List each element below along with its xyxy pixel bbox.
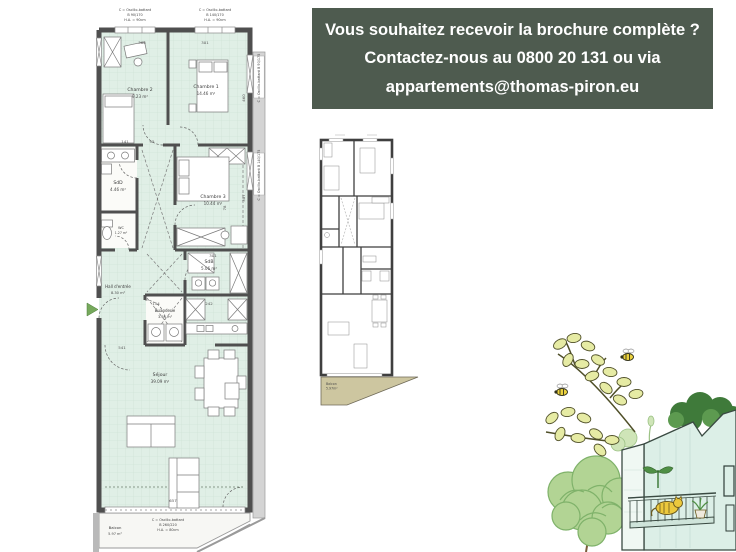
- svg-text:B 90/170: B 90/170: [127, 13, 142, 17]
- main-floor-plan: Chambre 2 9.23 m² Chambre 1 14.46 m² SdD…: [85, 0, 280, 552]
- room-area-sejour: 39.09 m²: [151, 379, 170, 384]
- room-area-chambre1: 14.46 m²: [197, 91, 216, 96]
- room-label-chambre2: Chambre 2: [127, 87, 152, 93]
- svg-text:B 260/220: B 260/220: [159, 523, 177, 527]
- room-area-chambre2: 9.23 m²: [132, 94, 148, 99]
- svg-text:307: 307: [241, 194, 246, 202]
- small-floor-plan: Balcon 5.97m²: [315, 128, 433, 418]
- room-area-balcon: 5.97 m²: [108, 532, 122, 536]
- room-area-hall: 8.30 m²: [111, 291, 126, 295]
- building-illustration: [622, 410, 736, 550]
- contact-banner: Vous souhaitez recevoir la brochure comp…: [312, 8, 713, 109]
- small-balcon-label: Balcon: [326, 382, 337, 386]
- room-area-buanderie: 3.64 m²: [158, 315, 173, 319]
- decorative-illustration: [530, 320, 736, 552]
- small-plan-balcony: Balcon 5.97m²: [321, 377, 418, 405]
- svg-text:C = Oscillo-battant: C = Oscillo-battant: [152, 518, 185, 522]
- room-label-wc: WC: [118, 226, 124, 230]
- wc-furniture: [102, 220, 113, 240]
- svg-text:301: 301: [209, 253, 217, 258]
- svg-text:C = Oscillo-battant: C = Oscillo-battant: [119, 8, 152, 12]
- bee-icon-2: [554, 384, 568, 396]
- room-label-chambre1: Chambre 1: [193, 84, 218, 90]
- svg-text:141: 141: [121, 139, 129, 144]
- svg-text:95: 95: [150, 139, 155, 144]
- room-area-sdb: 5.06 m²: [201, 266, 217, 271]
- room-label-hall: Hall d'entrée: [105, 284, 131, 289]
- bee-icon: [620, 349, 634, 361]
- svg-text:H.A. = 80cm: H.A. = 80cm: [157, 528, 179, 532]
- svg-text:78: 78: [222, 205, 227, 210]
- svg-text:301: 301: [201, 40, 209, 45]
- small-balcon-area: 5.97m²: [326, 387, 338, 391]
- flyer-page: Chambre 2 9.23 m² Chambre 1 14.46 m² SdD…: [0, 0, 736, 552]
- svg-text:C = Oscillo-battant B 140/175: C = Oscillo-battant B 140/175: [257, 150, 261, 201]
- svg-text:C = Oscillo-battant: C = Oscillo-battant: [199, 8, 232, 12]
- room-area-wc: 1.27 m²: [115, 231, 128, 235]
- room-label-sdd: SdD: [113, 180, 123, 186]
- svg-text:366: 366: [138, 40, 146, 45]
- room-area-sdd: 4.46 m²: [110, 187, 126, 192]
- entrance-arrow-icon: [87, 303, 98, 316]
- svg-text:H.A. = 90cm: H.A. = 90cm: [204, 18, 226, 22]
- svg-text:657: 657: [169, 498, 177, 503]
- banner-email: appartements@thomas-piron.eu: [386, 73, 640, 101]
- svg-text:H.A. = 90cm: H.A. = 90cm: [124, 18, 146, 22]
- svg-text:460: 460: [241, 94, 246, 102]
- room-label-chambre3: Chambre 3: [200, 194, 225, 200]
- room-label-buanderie: Buanderie: [155, 308, 176, 313]
- svg-text:B 140/170: B 140/170: [206, 13, 224, 17]
- svg-text:541: 541: [118, 345, 126, 350]
- room-label-sdb: SdB: [205, 259, 214, 265]
- svg-text:242: 242: [205, 301, 213, 306]
- room-area-chambre3: 10.44 m²: [204, 201, 223, 206]
- svg-text:154: 154: [152, 301, 160, 306]
- banner-line-1: Vous souhaitez recevoir la brochure comp…: [325, 16, 700, 44]
- svg-text:C = Oscillo-battant B 90/175: C = Oscillo-battant B 90/175: [257, 54, 261, 103]
- banner-line-2: Contactez-nous au 0800 20 131 ou via: [364, 44, 660, 72]
- room-label-sejour: Séjour: [153, 371, 168, 378]
- room-label-balcon: Balcon: [109, 525, 122, 530]
